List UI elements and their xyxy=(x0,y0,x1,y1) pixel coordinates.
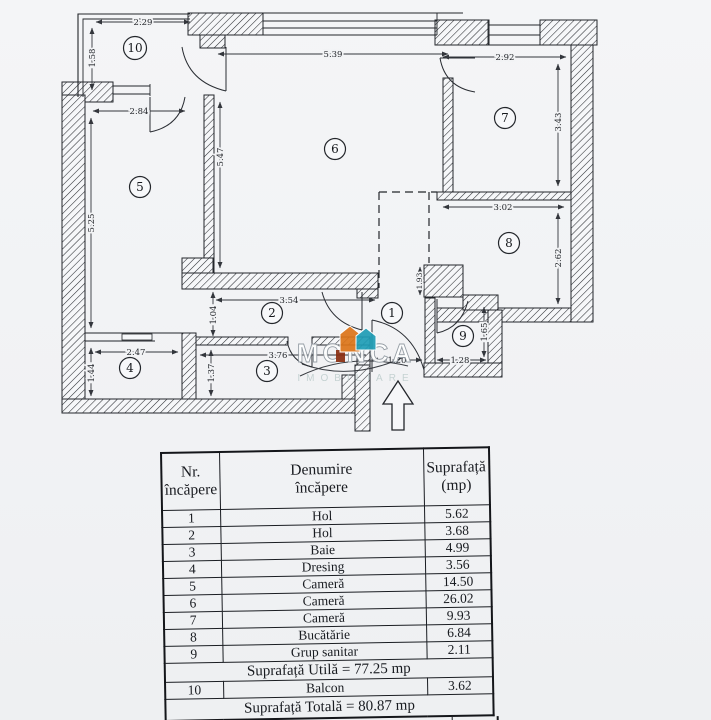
room-label-7: 7 xyxy=(495,108,516,129)
room-label-3: 3 xyxy=(257,361,278,382)
dim-room4-width: 2.47 xyxy=(127,348,146,358)
svg-text:10: 10 xyxy=(127,41,142,55)
col-header-suprafata-line1: Suprafață xyxy=(426,459,486,477)
svg-text:8: 8 xyxy=(505,236,513,250)
row-mp: 3.68 xyxy=(424,522,490,540)
col-header-suprafata-line2: (mp) xyxy=(441,477,471,495)
suprafata-totala-text: Suprafață Totală = 80.87 mp xyxy=(165,694,493,720)
row-nr: 10 xyxy=(165,681,223,699)
dim-room5-width: 2.84 xyxy=(130,107,149,117)
dim-room2-width: 3.54 xyxy=(280,296,299,306)
dim-step-height: 1.93 xyxy=(415,272,424,289)
row-nr: 6 xyxy=(164,594,222,612)
dim-room9-width: 1.28 xyxy=(451,356,470,366)
dim-room8-height: 2.62 xyxy=(554,249,564,268)
col-header-suprafata: Suprafață (mp) xyxy=(423,447,490,506)
row-mp: 9.93 xyxy=(426,607,492,625)
row-mp: 26.02 xyxy=(425,590,491,608)
area-table: Nr. încăpere Denumire încăpere Suprafață… xyxy=(160,446,499,720)
wall-hatching xyxy=(62,13,597,431)
watermark-house-teal-icon xyxy=(356,328,376,350)
suprafata-totala-row: Suprafață Totală = 80.87 mp xyxy=(165,694,493,720)
room-label-2: 2 xyxy=(262,303,283,324)
row-mp: 14.50 xyxy=(425,573,491,591)
col-header-denumire: Denumire încăpere xyxy=(219,448,424,509)
row-nr: 5 xyxy=(163,577,221,595)
room-label-1: 1 xyxy=(382,303,403,324)
col-header-nr-line2: încăpere xyxy=(165,481,218,499)
dim-room8-width: 3.02 xyxy=(494,203,513,213)
table-header-row: Nr. încăpere Denumire încăpere Suprafață… xyxy=(161,447,490,510)
col-header-nr: Nr. încăpere xyxy=(161,452,220,511)
row-nr: 3 xyxy=(163,543,221,561)
dim-room9-height: 1.65 xyxy=(480,323,490,342)
col-header-denumire-line2: încăpere xyxy=(295,479,348,497)
svg-text:1: 1 xyxy=(388,306,396,320)
row-nr: 1 xyxy=(162,509,220,527)
row-nr: 8 xyxy=(164,628,222,646)
svg-text:3: 3 xyxy=(263,364,271,378)
dim-balcony-depth: 1.58 xyxy=(88,49,98,68)
row-mp: 3.56 xyxy=(425,556,491,574)
col-header-nr-line1: Nr. xyxy=(181,463,201,480)
dim-room7-height: 3.43 xyxy=(554,113,564,132)
room-label-4: 4 xyxy=(120,358,141,379)
room-label-10: 10 xyxy=(124,37,147,60)
svg-text:7: 7 xyxy=(501,111,509,125)
col-header-denumire-line1: Denumire xyxy=(290,461,352,479)
room-label-6: 6 xyxy=(325,139,346,160)
row-nr: 7 xyxy=(164,611,222,629)
row-nr: 2 xyxy=(162,526,220,544)
dim-room2-height: 1.04 xyxy=(209,306,219,325)
dim-room7-width: 2.92 xyxy=(496,53,515,63)
watermark-logo: MONCA IMOBILIARE xyxy=(297,326,415,384)
scanned-floorplan-page: 2.29 1.58 2.84 5.25 5.39 5.47 2.92 3.43 … xyxy=(0,0,711,720)
room-label-8: 8 xyxy=(499,233,520,254)
dim-balcony-width: 2.29 xyxy=(134,18,153,28)
row-mp: 6.84 xyxy=(426,624,492,642)
watermark-tagline: IMOBILIARE xyxy=(297,373,414,384)
svg-text:4: 4 xyxy=(126,361,134,375)
svg-text:2: 2 xyxy=(268,306,276,320)
room-labels: 1 2 3 4 5 6 7 8 9 10 xyxy=(120,37,520,382)
dim-room6-height: 5.47 xyxy=(216,148,226,167)
dim-room4-height: 1.44 xyxy=(87,364,97,383)
row-nr: 9 xyxy=(164,645,222,663)
row-mp: 2.11 xyxy=(426,641,492,659)
room-label-9: 9 xyxy=(453,326,474,347)
dim-room3-width: 3.76 xyxy=(269,351,288,361)
svg-text:5: 5 xyxy=(136,180,144,194)
entrance-arrow-icon xyxy=(383,381,413,430)
row-nr: 4 xyxy=(163,560,221,578)
floor-plan: 2.29 1.58 2.84 5.25 5.39 5.47 2.92 3.43 … xyxy=(0,0,711,435)
dim-room6-width: 5.39 xyxy=(324,50,343,60)
svg-text:9: 9 xyxy=(459,329,467,343)
svg-text:6: 6 xyxy=(331,142,339,156)
dim-room5-height: 5.25 xyxy=(87,214,97,233)
row-mp: 4.99 xyxy=(425,539,491,557)
dim-room3-height: 1.37 xyxy=(207,364,217,383)
row-mp: 3.62 xyxy=(427,677,493,695)
row-mp: 5.62 xyxy=(424,505,490,523)
room-label-5: 5 xyxy=(130,177,151,198)
